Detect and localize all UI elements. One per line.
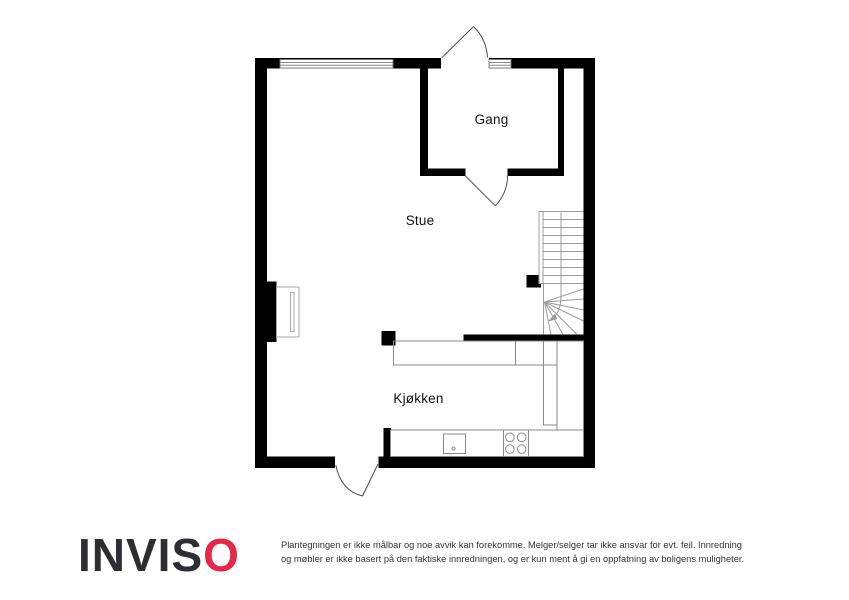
entrance-door-icon — [442, 27, 488, 58]
wall-left — [255, 58, 267, 468]
kitchen-wall-top — [464, 335, 584, 342]
stair-treads — [544, 212, 584, 284]
counter-corner-cell — [544, 365, 558, 425]
room-label-stue: Stue — [390, 213, 450, 228]
fireplace-chimney — [264, 282, 277, 343]
wall-right — [584, 58, 596, 468]
gang-wall-left — [420, 69, 428, 177]
window-gang-icon — [489, 60, 511, 69]
stair-railing — [539, 212, 543, 284]
inviso-logo-text: INVIS — [78, 529, 203, 581]
kitchen-door-stub — [384, 428, 392, 468]
kitchen-door-icon — [336, 464, 378, 496]
staircase — [539, 212, 584, 335]
room-label-kjokken: Kjøkken — [378, 391, 459, 406]
gang-wall-right — [558, 69, 564, 177]
fireplace-icon — [277, 287, 300, 337]
page: Gang Stue Kjøkken INVISO Plantegningen e… — [0, 0, 849, 600]
counter-bottom-run — [391, 430, 584, 457]
inviso-logo-o: O — [203, 529, 240, 581]
disclaimer-line-1: Plantegningen er ikke målbar og noe avvi… — [281, 539, 759, 553]
stair-winders — [545, 289, 584, 335]
disclaimer-line-2: og møbler er ikke basert på den faktiske… — [281, 553, 759, 567]
entrance-door-opening — [441, 58, 489, 70]
counter-top-run — [394, 341, 558, 365]
floor-plan — [0, 0, 849, 600]
disclaimer-text: Plantegningen er ikke målbar og noe avvi… — [281, 539, 759, 567]
inviso-logo: INVISO — [78, 532, 240, 579]
sink-icon — [444, 434, 466, 454]
wall-bottom — [255, 457, 595, 469]
gang-door-opening — [466, 168, 508, 177]
gang-door-icon — [466, 176, 508, 206]
counter-right-run — [557, 341, 584, 430]
window-stue-icon — [280, 60, 393, 69]
room-label-gang: Gang — [459, 112, 524, 127]
interior-walls — [264, 69, 584, 469]
kitchen-door-opening — [335, 456, 379, 469]
cooktop-icon — [504, 430, 529, 457]
